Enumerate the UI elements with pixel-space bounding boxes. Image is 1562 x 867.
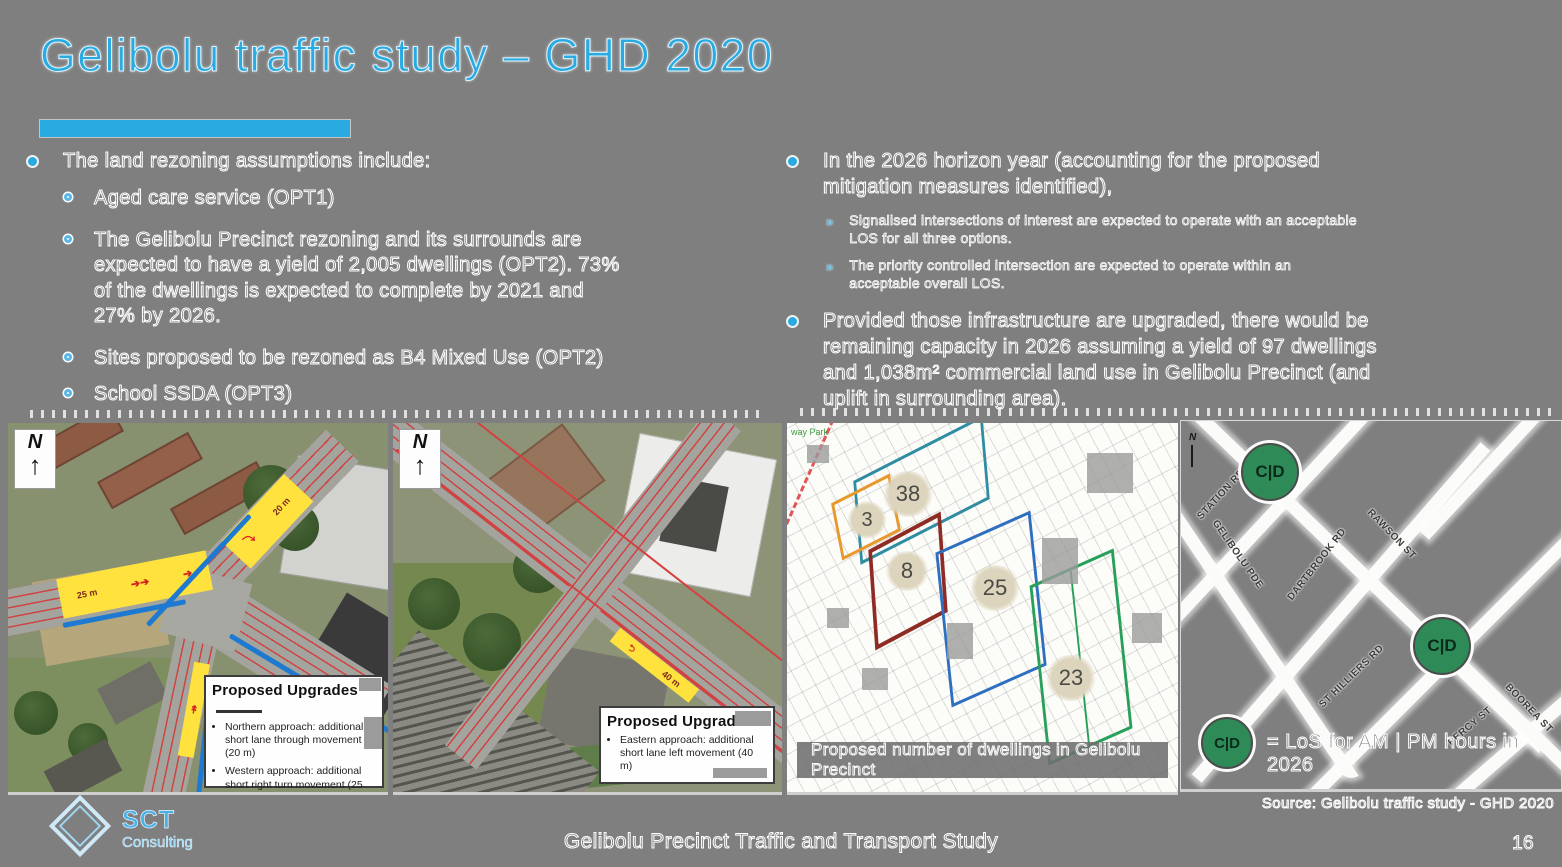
bullet-ring-icon (64, 193, 72, 201)
title-rule (216, 710, 262, 713)
sub-bullet-text: The priority controlled intersection are… (849, 257, 1291, 292)
map-building (1087, 453, 1133, 493)
upgrade-item: Western approach: additional short right… (225, 765, 376, 795)
redaction-blob (735, 711, 771, 726)
bullet-text: Provided those infrastructure are upgrad… (823, 308, 1377, 412)
los-marker: C|D (1241, 443, 1299, 501)
logo-subtext: Consulting (122, 834, 193, 851)
page-title: Gelibolu traffic study – GHD 2020 (40, 28, 774, 82)
bullet-item: In the 2026 horizon year (accounting for… (782, 148, 1552, 200)
dwelling-count: 25 (969, 565, 1021, 611)
right-bullet-column: In the 2026 horizon year (accounting for… (782, 148, 1552, 412)
dwellings-map: way Park 38 3 8 25 23 Proposed number of… (787, 423, 1178, 795)
clipped-text-line (800, 408, 1552, 416)
redaction-blob (364, 717, 382, 749)
lane-length-label: 20 m (271, 495, 292, 517)
los-map: STATION RD GELIBOLU PDE DARTBROOK RD RAW… (1180, 420, 1562, 792)
proposed-upgrade-box: Proposed Upgrade Eastern approach: addit… (599, 706, 775, 784)
sct-consulting-logo: SCT Consulting (44, 802, 304, 862)
map-building (807, 445, 829, 463)
street-label: ST HILLIERS RD (1317, 643, 1386, 710)
bullet-dot-icon (788, 317, 797, 326)
sub-bullet-text: The Gelibolu Precinct rezoning and its s… (94, 228, 620, 330)
dwelling-count: 3 (847, 501, 887, 539)
north-arrow-icon: N ↑ (399, 429, 441, 489)
sub-bullet-text: Aged care service (OPT1) (94, 186, 335, 212)
aerial-photo-upgrades-west: 25 m ➔➔ ➔ ⤵ 20 m ↟ N ↑ Proposed Upgrades… (8, 423, 388, 795)
upgrade-item: Northern approach: additional short lane… (225, 721, 376, 760)
bullet-item: The land rezoning assumptions include: (22, 148, 767, 174)
sub-bullet-item: Aged care service (OPT1) (22, 186, 767, 212)
tree (14, 691, 58, 735)
clipped-text-line (30, 410, 760, 418)
los-marker: C|D (1413, 617, 1471, 675)
sub-bullet-item: » The priority controlled intersection a… (782, 257, 1552, 292)
sub-bullet-text: Sites proposed to be rezoned as B4 Mixed… (94, 346, 604, 372)
sub-bullet-item: » Signalised intersections of interest a… (782, 212, 1552, 247)
lane-length-label: 25 m (76, 587, 98, 601)
red-arrow-icon: ⤵ (243, 532, 258, 547)
aerial-photo-upgrade-east: ⮌ 40 m N ↑ Proposed Upgrade Eastern appr… (393, 423, 782, 795)
bullet-text: The land rezoning assumptions include: (63, 148, 431, 174)
bullet-ring-icon (64, 389, 72, 397)
slide: Gelibolu traffic study – GHD 2020 The la… (0, 0, 1562, 867)
map-building (1042, 538, 1078, 584)
street-label: STATION RD (1195, 467, 1247, 522)
proposed-upgrades-box: Proposed Upgrades Northern approach: add… (204, 675, 384, 788)
bullet-text: In the 2026 horizon year (accounting for… (823, 148, 1320, 200)
sub-bullet-text: School SSDA (OPT3) (94, 382, 292, 408)
map-building (1132, 613, 1162, 643)
bullet-chevron-icon: » (826, 259, 833, 274)
box-title: Proposed Upgrade (607, 713, 744, 730)
sub-bullet-text: Signalised intersections of interest are… (849, 212, 1357, 247)
road-upper-right (1419, 420, 1562, 540)
building (100, 434, 201, 506)
left-bullet-column: The land rezoning assumptions include: A… (22, 148, 767, 407)
page-number: 16 (1512, 833, 1534, 855)
map-caption: Proposed number of dwellings in Gelibolu… (811, 740, 1168, 780)
tree (408, 578, 460, 630)
north-arrow-icon: N ↑ (14, 429, 56, 489)
redaction-blob (713, 768, 767, 778)
road-station-rd (1180, 420, 1419, 674)
los-legend-marker: C|D (1201, 717, 1253, 769)
redaction-blob (359, 678, 381, 691)
sub-bullet-item: Sites proposed to be rezoned as B4 Mixed… (22, 346, 767, 372)
box-title: Proposed Upgrades (212, 682, 358, 699)
bullet-item: Provided those infrastructure are upgrad… (782, 308, 1552, 412)
map-building (862, 668, 888, 690)
map-building (827, 608, 849, 628)
map-caption-bar: Proposed number of dwellings in Gelibolu… (797, 742, 1168, 778)
accent-bar (40, 120, 350, 137)
dwelling-count: 23 (1045, 655, 1097, 701)
map-building (947, 623, 973, 659)
logo-text: SCT (122, 806, 175, 835)
bullet-ring-icon (64, 235, 72, 243)
sub-bullet-item: The Gelibolu Precinct rezoning and its s… (22, 228, 767, 330)
sub-bullet-item: School SSDA (OPT3) (22, 382, 767, 408)
park-label: way Park (791, 427, 828, 437)
red-arrow-icon: ⮌ (626, 642, 638, 654)
red-arrow-icon: ➔➔ (130, 577, 150, 590)
logo-diamond-icon (49, 795, 111, 857)
north-arrow-icon: N (1189, 427, 1196, 467)
red-arrow-icon: ↟ (188, 704, 199, 715)
source-note: Source: Gelibolu traffic study - GHD 202… (1262, 795, 1554, 812)
bullet-dot-icon (28, 157, 37, 166)
bullet-chevron-icon: » (826, 214, 833, 229)
upgrade-list: Northern approach: additional short lane… (212, 721, 376, 795)
bullet-ring-icon (64, 353, 72, 361)
bullet-dot-icon (788, 157, 797, 166)
los-legend-text: = LoS for AM | PM hours in 2026 (1267, 731, 1561, 777)
dwelling-count: 8 (885, 551, 929, 591)
dwelling-count: 38 (882, 471, 934, 517)
